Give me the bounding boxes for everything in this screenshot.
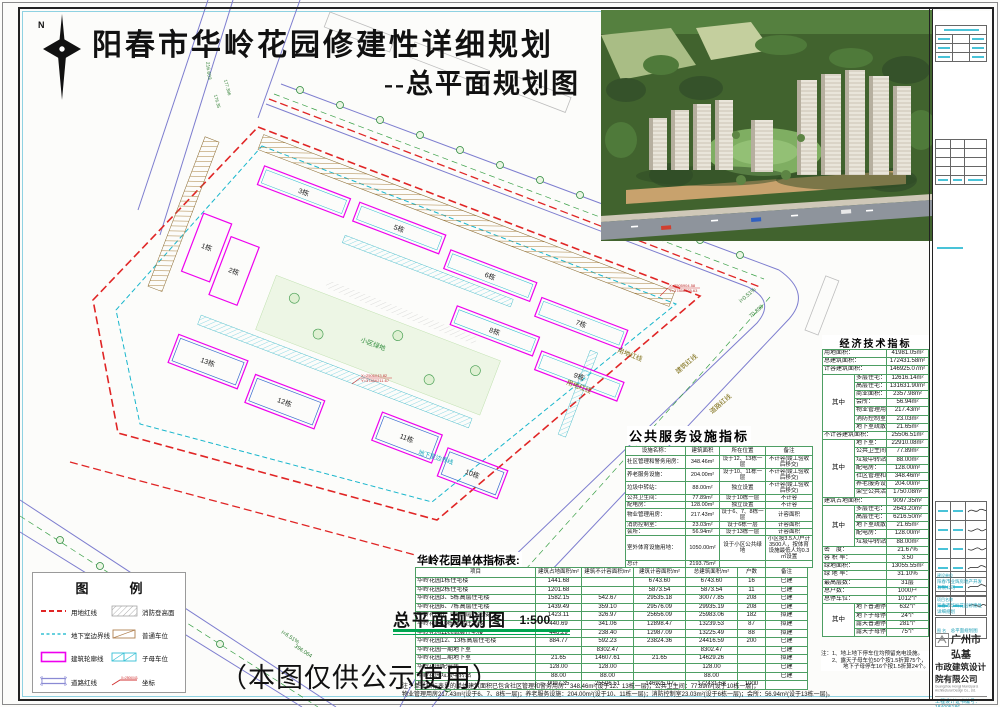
table-cell: 204.00m² (686, 469, 720, 482)
header-cell: 建筑计容面积/m² (634, 568, 686, 578)
table-cell: 217.43m² (686, 509, 720, 522)
table-row: 不计容建筑面积：25506.51m² (823, 432, 929, 440)
titleblock-mark (937, 245, 963, 251)
table-cell: 884.77 (536, 638, 582, 647)
building-label: 13栋 (199, 355, 216, 369)
table-cell: 632个 (887, 604, 929, 612)
table-cell: 配电房： (855, 464, 887, 472)
table-cell: 281个 (887, 620, 929, 628)
table-cell: 2357.98m² (887, 391, 929, 399)
table-cell: 5873.54 (686, 586, 738, 595)
table-cell: 592.23 (582, 638, 634, 647)
table-cell: 348.46m² (887, 473, 929, 481)
unit-table-title: 华岭花园单体指标表: (415, 552, 522, 568)
scale-block: 总平面规划图 1:500 (393, 606, 550, 631)
table-cell: 配电房： (855, 530, 887, 538)
table-cell: 建筑占地面积： (823, 497, 887, 505)
table-cell: 容 积 率： (823, 555, 887, 563)
table-cell: 128.00 (686, 663, 738, 672)
table-cell: 172431.58m² (887, 358, 929, 366)
table-cell: 1441.68 (536, 578, 582, 587)
table-cell: 208 (738, 595, 766, 604)
signature (966, 525, 986, 534)
header-cell: 户数 (738, 568, 766, 578)
table-cell: 华岭花园12、13栋高层住宅楼 (416, 638, 536, 647)
table-cell: 88.00 (582, 672, 634, 681)
plan-label-daolu: 道路红线 (707, 391, 733, 415)
titleblock-grid (935, 139, 987, 185)
table-cell: 1000户 (887, 587, 929, 595)
table-cell: 21.65 (634, 655, 686, 664)
table-cell: 设于12、13栋一层 (720, 456, 766, 469)
legend-label: 普通车位 (142, 630, 168, 640)
table-cell: 77.89m² (887, 448, 929, 456)
table-cell (738, 646, 766, 655)
table-cell: 多层住宅： (855, 505, 887, 513)
drawing-sheet: 小区绿地 (0, 0, 1000, 707)
table-cell: 社区管理和警务用房： (855, 473, 887, 481)
table-cell: 养老服务设施： (626, 469, 686, 482)
table-cell: 21.65m² (887, 522, 929, 530)
company-block: 广州市弘基 市政建筑设计院有限公司 Guangzhou Hongji Munic… (935, 631, 987, 707)
table-cell: 12987.09 (634, 629, 686, 638)
project-row: 项目名称 阳春市华岭花园修建性详细规划 (935, 595, 987, 616)
header-cell: 所在位置 (720, 447, 766, 456)
aerial-photo (601, 10, 932, 241)
table-cell: 垃圾中转站： (855, 456, 887, 464)
econ-table-title: 经济技术指标 (822, 335, 929, 350)
building-label: 7栋 (574, 318, 587, 330)
table-cell: 25506.51m² (887, 432, 929, 440)
legend-label: 子母车位 (142, 653, 168, 663)
table-cell: 31.10% (887, 571, 929, 579)
table-cell: 21.65 (536, 655, 582, 664)
table-cell: 542.67 (582, 595, 634, 604)
table-cell: 12898.47 (634, 620, 686, 629)
table-cell: 总建筑面积： (823, 358, 887, 366)
road-redline-icon (40, 675, 67, 687)
table-cell: 359.10 (582, 603, 634, 612)
table-cell (582, 578, 634, 587)
table-cell: 已建 (766, 638, 808, 647)
table-cell: 13225.49 (686, 629, 738, 638)
table-cell: 总户数： (823, 587, 887, 595)
basement-line-icon (40, 628, 67, 640)
table-cell: 垃圾中转站： (855, 538, 887, 546)
coordinate-icon: X=2506043.82 Y=37856211.67 (111, 675, 138, 687)
table-cell: 绿地面积： (823, 563, 887, 571)
table-cell (738, 672, 766, 681)
table-cell: 14607.61 (582, 655, 634, 664)
table-cell: 计容建筑面积： (823, 366, 887, 374)
table-cell: 养老服务设施： (855, 481, 887, 489)
table-cell: 23.03m² (887, 415, 929, 423)
table-row: 总停车位：1012个 (823, 596, 929, 604)
table-cell: 设于13栋一层 (720, 529, 766, 536)
table-cell: 6743.60 (686, 578, 738, 587)
site-buildings: 小区绿地 (122, 115, 675, 531)
table-cell: 不计容(竣工验收后移交) (766, 469, 813, 482)
table-cell: 已建 (766, 672, 808, 681)
table-cell: 设于10、11栋一层 (720, 469, 766, 482)
company-name-en: Guangzhou Hongji Municipal & Architectur… (935, 685, 982, 692)
plan-label-yongdi-1: 用地红线 (616, 345, 644, 363)
table-cell: 用地面积： (823, 350, 887, 358)
table-cell: 88.00 (536, 672, 582, 681)
legend-label: 消防登高面 (142, 607, 175, 617)
table-cell: 24416.59 (686, 638, 738, 647)
table-cell: 88.00m² (887, 538, 929, 546)
building-label: 12栋 (276, 395, 293, 409)
table-cell: 14629.26 (686, 655, 738, 664)
scale-value: 1:500 (519, 613, 550, 627)
table-cell: 地下室疏散楼梯： (855, 522, 887, 530)
fire-lane-icon (111, 605, 138, 617)
table-row: 物业管理用房：217.43m²设于6、7、8栋一层计容面积 (626, 509, 813, 522)
table-cell: 室外体育设施用地： (626, 536, 686, 561)
table-cell: 设于6栋一层 (720, 522, 766, 529)
table-cell: 不计容(竣工验收后移交) (766, 456, 813, 469)
north-label: N (38, 20, 45, 30)
table-cell: 会所： (855, 399, 887, 407)
building-outline-icon (40, 651, 67, 663)
company-logo (935, 633, 949, 647)
table-cell: 已建 (766, 586, 808, 595)
header-cell: 总建筑面积/m² (686, 568, 738, 578)
table-cell: 88 (738, 629, 766, 638)
table-cell: 1750.08m² (887, 489, 929, 497)
table-cell: 200 (738, 638, 766, 647)
building-label: 3栋 (297, 186, 310, 198)
table-cell: 217.43m² (887, 407, 929, 415)
table-cell: 16 (738, 578, 766, 587)
table-cell: 多层住宅： (855, 374, 887, 382)
table-row: 容 积 率：3.50 (823, 555, 929, 563)
land-redline-icon (40, 605, 67, 617)
group-cell: 其中 (823, 374, 855, 431)
table-row: 社区管理和警务用房：348.46m²设于12、13栋一层不计容(竣工验收后移交) (626, 456, 813, 469)
table-cell: 9097.35m² (887, 497, 929, 505)
table-cell: 128.00 (582, 663, 634, 672)
table-cell: 计容面积 (766, 529, 813, 536)
table-cell: 87 (738, 620, 766, 629)
table-row: 华岭花园2栋住宅楼1201.685873.545873.5411已建 (416, 586, 808, 595)
table-cell: 物业管理用房： (626, 509, 686, 522)
table-row: 室外体育设施用地：1050.00m²设于小区公共绿地小区按3.5人/户计3500… (626, 536, 813, 561)
parking-stall-icon (111, 628, 138, 640)
company-name-cn2: 市政建筑设计院有限公司 (935, 661, 987, 685)
table-cell: 5873.54 (634, 586, 686, 595)
table-cell (738, 655, 766, 664)
table-cell: 88.00 (686, 672, 738, 681)
road-note: 176.35 (213, 94, 222, 109)
titleblock-grid (935, 25, 987, 62)
table-cell: 75个 (887, 628, 929, 636)
table-row: 华岭花园12、13栋高层住宅楼884.77592.2323824.3624416… (416, 638, 808, 647)
table-row: 其中地下普通停车位：632个 (823, 604, 929, 612)
group-cell: 其中 (823, 505, 855, 546)
titleblock: 建设单位 阳春市业辉房地产开发有限公司 项目名称 阳春市华岭花园修建性详细规划 … (933, 11, 990, 697)
table-cell: 77.89m² (686, 495, 720, 502)
cert-number: 工程设计证书编号：184005186 (935, 696, 987, 707)
group-cell: 其中 (823, 604, 855, 637)
legend: 图 例 用地红线 消防登高面 地下室边界线 普通车位 建筑轮廓线 子母车位 (32, 572, 186, 693)
table-cell: 3.50 (887, 555, 929, 563)
legend-label: 坐标 (142, 677, 155, 687)
table-cell: 88.00m² (686, 482, 720, 495)
table-cell: 128.00m² (686, 502, 720, 509)
legend-label: 建筑轮廓线 (71, 653, 104, 663)
coord-label: Y=37856025.63 (669, 288, 698, 293)
table-cell: 56.94m² (887, 399, 929, 407)
table-cell: 31层 (887, 579, 929, 587)
table-cell: 最高层数： (823, 579, 887, 587)
table-cell: 高层住宅： (855, 514, 887, 522)
building-label: 11栋 (399, 431, 416, 445)
table-cell: 56.94m² (686, 529, 720, 536)
north-arrow: N (36, 12, 88, 104)
table-cell: 已建 (766, 663, 808, 672)
table-row: 密 度：21.67% (823, 546, 929, 554)
table-cell: 208 (738, 603, 766, 612)
table-cell: 会所： (626, 529, 686, 536)
table-cell: 1201.68 (536, 586, 582, 595)
table-cell: 24个 (887, 612, 929, 620)
table-cell: 131631.90m² (887, 382, 929, 390)
table-cell: 绿 地 率： (823, 571, 887, 579)
table-cell: 架空公共活动空间： (855, 489, 887, 497)
road-note: 216.603 (204, 62, 212, 81)
scale-underline (393, 634, 570, 635)
table-cell: 13239.53 (686, 620, 738, 629)
table-cell: 地下子母停车位： (855, 612, 887, 620)
table-cell (582, 586, 634, 595)
header-cell: 备注 (766, 447, 813, 456)
table-cell: 21.67% (887, 546, 929, 554)
header-cell: 设施名称： (626, 447, 686, 456)
table-row: 用地面积：41981.05m² (823, 350, 929, 358)
table-row: 消防控制室：23.03m²设于6栋一层计容面积 (626, 522, 813, 529)
table-cell: 6743.60 (634, 578, 686, 587)
econ-notes: 注：1、地上地下停车位均预留充电设施。 2、露天子母车位50个按1.5折算75个… (821, 651, 933, 671)
building-label: 5栋 (392, 222, 405, 234)
group-cell: 其中 (823, 440, 855, 497)
econ-table: 用地面积：41981.05m²总建筑面积：172431.58m²计容建筑面积：1… (822, 349, 929, 637)
table-cell: 不计容(竣工验收后移交) (766, 482, 813, 495)
building-label: 2栋 (227, 265, 240, 277)
table-row: 配电房：128.00m²独立设置不计容 (626, 502, 813, 509)
table-cell (634, 646, 686, 655)
client-name: 阳春市业辉房地产开发有限公司 (937, 579, 985, 590)
table-cell: 独立设置 (720, 482, 766, 495)
road-note: 70.890 (748, 304, 765, 320)
table-cell: 华岭花园一期地下室 (416, 646, 536, 655)
table-cell: 25983.06 (686, 612, 738, 621)
legend-label: 道路红线 (71, 677, 97, 687)
table-cell: 露天普通停车位： (855, 620, 887, 628)
table-row: 计容建筑面积：146925.07m² (823, 366, 929, 374)
svg-text:X=2506043.82 Y=37856211.67: X=2506043.82 Y=37856211.67 (121, 676, 138, 680)
table-cell: 不计容建筑面积： (823, 432, 887, 440)
table-cell: 341.06 (582, 620, 634, 629)
table-row: 华岭花园一期地下室8302.478302.47已建 (416, 646, 808, 655)
road-note: 177.396 (223, 79, 232, 96)
table-cell: 8302.47 (686, 646, 738, 655)
table-cell: 拟建 (766, 629, 808, 638)
table-row: 养老服务设施：204.00m²设于10、11栋一层不计容(竣工验收后移交) (626, 469, 813, 482)
table-cell: 拟建 (766, 612, 808, 621)
public-notice: （本图仅供公示使用） (220, 656, 500, 695)
table-cell: 高层住宅： (855, 382, 887, 390)
table-cell: 29935.19 (686, 603, 738, 612)
legend-label: 用地红线 (71, 607, 97, 617)
table-cell: 露天子母停车位： (855, 628, 887, 636)
header-cell: 建筑不计容面积/m² (582, 568, 634, 578)
table-row: 其中多层住宅：12616.14m² (823, 374, 929, 382)
project-name: 阳春市华岭花园修建性详细规划 (937, 603, 985, 614)
table-cell: 30077.85 (686, 595, 738, 604)
table-cell: 已建 (766, 646, 808, 655)
table-row: 会所：56.94m²设于13栋一层计容面积 (626, 529, 813, 536)
table-cell (634, 663, 686, 672)
table-cell (536, 646, 582, 655)
table-cell: 地下室： (855, 440, 887, 448)
table-cell: 128.00m² (887, 464, 929, 472)
table-cell: 设于10栋一层 (720, 495, 766, 502)
table-row: 绿 地 率：31.10% (823, 571, 929, 579)
table-cell: 23824.36 (634, 638, 686, 647)
table-cell: 设于6、7、8栋一层 (720, 509, 766, 522)
table-cell: 商业面积： (855, 391, 887, 399)
coord-label: Y=37856211.67 (361, 378, 390, 383)
table-cell: 密 度： (823, 546, 887, 554)
plan-label-jianzhu: 建筑红线 (673, 351, 699, 375)
header-cell: 建筑面积 (686, 447, 720, 456)
table-cell: 22910.08m² (887, 440, 929, 448)
table-cell: 已建 (766, 578, 808, 587)
table-cell: 29535.18 (634, 595, 686, 604)
header-cell: 建筑占地面积/m² (536, 568, 582, 578)
legend-title: 图 例 (33, 573, 185, 597)
table-cell: 公共卫生间： (626, 495, 686, 502)
table-cell: 计容面积 (766, 509, 813, 522)
twin-stall-icon (111, 651, 138, 663)
table-cell: 238.40 (582, 629, 634, 638)
header-row: 项目建筑占地面积/m²建筑不计容面积/m²建筑计容面积/m²总建筑面积/m²户数… (416, 568, 808, 578)
table-cell: 不计容 (766, 502, 813, 509)
table-cell: 41981.05m² (887, 350, 929, 358)
econ-note-line: 地下子母停车16个按1.5折算24个。 (821, 664, 933, 671)
table-cell: 地下普通停车位： (855, 604, 887, 612)
table-cell: 25656.09 (634, 612, 686, 621)
table-row: 总建筑面积：172431.58m² (823, 358, 929, 366)
table-cell: 182 (738, 612, 766, 621)
table-cell (738, 663, 766, 672)
client-row: 建设单位 阳春市业辉房地产开发有限公司 (935, 571, 987, 592)
table-cell: 1582.15 (536, 595, 582, 604)
table-cell: 物业管理用房： (855, 407, 887, 415)
table-cell: 计容面积 (766, 522, 813, 529)
table-cell: 348.46m² (686, 456, 720, 469)
table-cell: 326.97 (582, 612, 634, 621)
table-row: 其中多层住宅：2643.20m² (823, 505, 929, 513)
table-cell: 11 (738, 586, 766, 595)
header-cell: 备注 (766, 568, 808, 578)
header-cell: 项目 (416, 568, 536, 578)
table-cell: 128.00m² (887, 530, 929, 538)
table-cell: 204.00m² (887, 481, 929, 489)
public-facilities-table: 设施名称：建筑面积所在位置备注社区管理和警务用房：348.46m²设于12、13… (625, 446, 813, 568)
table-cell: 2643.20m² (887, 505, 929, 513)
legend-label: 地下室边界线 (71, 630, 110, 640)
header-row: 设施名称：建筑面积所在位置备注 (626, 447, 813, 456)
table-row: 最高层数：31层 (823, 579, 929, 587)
table-cell: 146925.07m² (887, 366, 929, 374)
table-cell: 1050.00m² (686, 536, 720, 561)
scale-label: 总平面规划图 (393, 606, 507, 631)
econ-note-line: 注：1、地上地下停车位均预留充电设施。 (821, 651, 933, 658)
table-cell: 12616.14m² (887, 374, 929, 382)
building-label: 8栋 (488, 325, 501, 337)
table-cell: 消防控制室： (855, 415, 887, 423)
table-cell: 公共卫生间： (855, 448, 887, 456)
table-row: 华岭花园1栋住宅楼1441.686743.606743.6016已建 (416, 578, 808, 587)
table-cell: 华岭花园1栋住宅楼 (416, 578, 536, 587)
table-cell: 8302.47 (582, 646, 634, 655)
scale-underline (393, 629, 570, 632)
table-cell: 128.00 (536, 663, 582, 672)
table-cell: 6216.50m² (887, 514, 929, 522)
table-cell: 配电房： (626, 502, 686, 509)
table-cell: 拟建 (766, 655, 808, 664)
table-cell: 社区管理和警务用房： (626, 456, 686, 469)
table-row: 垃圾中转站：88.00m²独立设置不计容(竣工验收后移交) (626, 482, 813, 495)
signature (966, 506, 986, 515)
table-cell: 小区按3.5人/户计3500人，按体育设施最低人均0.3㎡设置 (766, 536, 813, 561)
table-row: 公共卫生间：77.89m²设于10栋一层不计容 (626, 495, 813, 502)
signature (966, 544, 986, 553)
table-row: 建筑占地面积：9097.35m² (823, 497, 929, 505)
table-cell: 华岭花园3、5栋高层住宅楼 (416, 595, 536, 604)
table-row: 绿地面积：13055.55m² (823, 563, 929, 571)
table-cell: 华岭花园2栋住宅楼 (416, 586, 536, 595)
table-cell (634, 672, 686, 681)
table-cell: 独立设置 (720, 502, 766, 509)
table-cell: 总停车位： (823, 596, 887, 604)
drawing-title: 阳春市华岭花园修建性详细规划 (92, 20, 592, 64)
table-row: 总户数：1000户 (823, 587, 929, 595)
building-label: 1栋 (200, 241, 213, 253)
table-cell: 23.03m² (686, 522, 720, 529)
table-cell: 消防控制室： (626, 522, 686, 529)
road-note: i=0.51% (738, 287, 757, 305)
table-row: 其中地下室：22910.08m² (823, 440, 929, 448)
table-cell: 设于小区公共绿地 (720, 536, 766, 561)
table-cell: 拟建 (766, 620, 808, 629)
building-label: 6栋 (483, 270, 496, 282)
table-cell: 21.65m² (887, 423, 929, 431)
table-cell: 地下室疏散楼梯： (855, 423, 887, 431)
table-cell: 88.00m² (887, 456, 929, 464)
table-cell: 13055.55m² (887, 563, 929, 571)
table-cell: 垃圾中转站： (626, 482, 686, 495)
table-cell: 不计容 (766, 495, 813, 502)
table-cell: 已建 (766, 603, 808, 612)
public-facilities-title: 公共服务设施指标 (627, 426, 751, 445)
table-cell: 已建 (766, 595, 808, 604)
table-row: 华岭花园3、5栋高层住宅楼1582.15542.6729535.1830077.… (416, 595, 808, 604)
table-cell: 29576.09 (634, 603, 686, 612)
